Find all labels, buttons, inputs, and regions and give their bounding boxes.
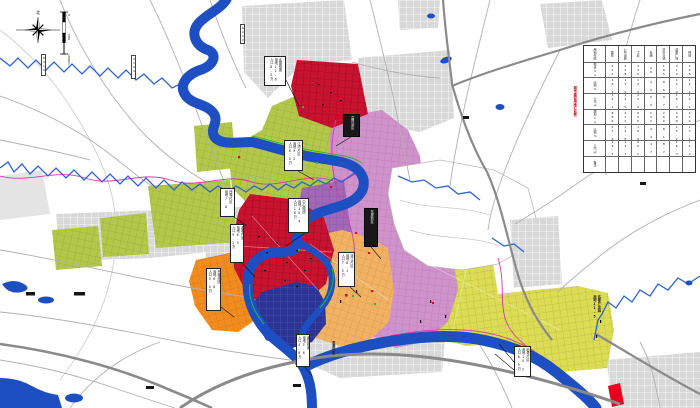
district-text-label: 李渡片区 — [328, 340, 337, 366]
table-cell: 14.1 — [682, 93, 695, 109]
land-use-table-grid: 用地代码居住公共设施工业仓储对外交通道路广场绿地现状ha612238420961… — [584, 46, 695, 172]
callout-line: 用地8.1 — [345, 254, 348, 285]
table-cell — [618, 156, 631, 172]
table-cell: 人均㎡ — [584, 93, 605, 109]
callout-line: 江湾片区 — [296, 142, 299, 169]
table-cell: 对外交通 — [656, 46, 669, 62]
table-cell: 29.5 — [605, 140, 618, 156]
table-cell — [682, 156, 695, 172]
callout-label: 江湾片区 用地9.2 人口6.0万 — [284, 140, 303, 171]
table-cell: 142 — [644, 109, 657, 125]
table-cell: 13.1 — [682, 124, 695, 140]
callout-line: 人口4.8万 — [297, 336, 300, 365]
table-cell: 18.8 — [631, 124, 644, 140]
table-cell: 11.0 — [618, 77, 631, 93]
table-cell — [631, 156, 644, 172]
table-cell: 412 — [618, 109, 631, 125]
table-cell: 605 — [631, 109, 644, 125]
callout-line: 临港片区 — [525, 348, 528, 375]
district-text-label: 东部产业园 用地11.5 — [590, 294, 602, 334]
callout-line: 西城片区 — [228, 190, 231, 215]
north-label: 北 — [36, 9, 40, 15]
table-cell: 12.5 — [618, 93, 631, 109]
table-cell: 绿地 — [682, 46, 695, 62]
land-use-table: 用地代码居住公共设施工业仓储对外交通道路广场绿地现状ha612238420961… — [583, 45, 696, 173]
table-cell: 8.1 — [656, 124, 669, 140]
table-cell: 4.5 — [644, 77, 657, 93]
table-cell: 14.0 — [682, 140, 695, 156]
table-cell: 32.1 — [605, 93, 618, 109]
table-cell: 185 — [656, 62, 669, 78]
callout-line: 东岸新区 — [369, 210, 372, 245]
table-cell: 488 — [669, 109, 682, 125]
table-cell: 260 — [656, 109, 669, 125]
table-cell: 仓储 — [644, 46, 657, 62]
callout-line: 人口9.2万 — [231, 226, 234, 261]
table-cell: 比例% — [584, 124, 605, 140]
callout-line: 人口7.5万 — [340, 254, 343, 285]
table-cell: 268 — [682, 62, 695, 78]
callout-line: 用地11.5 — [592, 295, 595, 333]
callout-line: 用地5.6 — [301, 336, 304, 365]
district-name-box: 高铁站区 — [343, 114, 360, 137]
table-cell: 用地代码 — [584, 46, 605, 62]
table-cell: 238 — [618, 62, 631, 78]
callout-line: 李渡片区 — [331, 341, 334, 365]
callout-line: 用地15.4 — [297, 200, 300, 231]
table-cell: 14.4 — [669, 77, 682, 93]
table-cell: 工业 — [631, 46, 644, 62]
road-label: X103 — [131, 55, 136, 79]
table-cell: 612 — [605, 62, 618, 78]
callout-label: 老城片区 用地6.3 人口9.2万 — [230, 224, 244, 263]
callout-line: 用地10.2 — [521, 348, 524, 375]
table-cell: 12.4 — [682, 77, 695, 93]
callout-line: 人口6.0万 — [287, 142, 290, 169]
callout-label: 西城片区 用地7.8 — [220, 188, 235, 217]
scale-tick: 0 — [67, 14, 71, 16]
table-cell: 19.5 — [631, 77, 644, 93]
table-cell: 道路广场 — [669, 46, 682, 62]
table-cell: 16.3 — [669, 140, 682, 156]
district-name-box: 东岸新区 — [364, 208, 378, 247]
callout-line: 北部组团 — [278, 58, 281, 84]
table-cell: 备注 — [584, 156, 605, 172]
callout-line: 高铁站区 — [350, 116, 353, 135]
callout-line: 南部组团 — [306, 336, 309, 365]
callout-line: 人口8.5万 — [269, 58, 272, 84]
table-cell: 20.2 — [631, 140, 644, 156]
road-label: G212 — [240, 24, 245, 44]
callout-label: 西南组团 用地6.8 人口5.0万 — [206, 268, 221, 311]
table-cell — [644, 156, 657, 172]
table-cell: 规划ha — [584, 109, 605, 125]
planning-map: 北 0 500 1000m 北部组团 用地12.6 人口8.5万 高铁站区 江湾… — [0, 0, 700, 408]
table-cell: 13.7 — [618, 140, 631, 156]
table-cell: 9.7 — [656, 93, 669, 109]
table-cell — [669, 156, 682, 172]
callout-line: 用地9.2 — [292, 142, 295, 169]
table-cell: 现状ha — [584, 62, 605, 78]
table-cell: 居住 — [605, 46, 618, 62]
table-cell: 比例% — [584, 77, 605, 93]
table-cell: 4.7 — [644, 140, 657, 156]
callout-label: 滨江片区 用地8.1 人口7.5万 — [338, 252, 355, 287]
table-cell — [605, 156, 618, 172]
callout-line: 人口6.5万 — [516, 348, 519, 375]
table-cell: 886 — [605, 109, 618, 125]
table-cell: 15.2 — [669, 124, 682, 140]
callout-label: 南部组团 用地5.6 人口4.8万 — [296, 334, 310, 367]
table-cell: 4.4 — [644, 124, 657, 140]
land-use-table-title: 城市建设用地汇总表 — [572, 86, 576, 158]
callout-line: 用地7.8 — [224, 190, 227, 215]
scale-tick: 500 — [67, 34, 71, 40]
road-label: G319 — [41, 54, 46, 76]
table-cell — [656, 156, 669, 172]
table-cell: 人均㎡ — [584, 140, 605, 156]
scale-bar: 0 500 1000m — [60, 12, 71, 65]
table-cell: 8.6 — [656, 77, 669, 93]
table-cell: 22.0 — [631, 93, 644, 109]
table-cell: 420 — [682, 109, 695, 125]
table-cell: 公共设施 — [618, 46, 631, 62]
callout-label: 中心组团 用地15.4 人口18万 — [288, 198, 309, 233]
callout-line: 人口18万 — [292, 200, 295, 231]
compass-rose: 北 — [16, 9, 60, 43]
table-cell: 96 — [644, 62, 657, 78]
callout-label: 临港片区 用地10.2 人口6.5万 — [514, 346, 531, 377]
table-cell: 420 — [631, 62, 644, 78]
table-cell: 12.8 — [618, 124, 631, 140]
callout-line: 用地6.3 — [235, 226, 238, 261]
scale-tick: 1000m — [67, 54, 71, 65]
callout-line: 老城片区 — [240, 226, 243, 261]
callout-line: 中心组团 — [301, 200, 304, 231]
table-cell: 310 — [669, 62, 682, 78]
callout-line: 西南组团 — [216, 270, 219, 309]
table-cell: 27.6 — [605, 124, 618, 140]
callout-line: 滨江片区 — [349, 254, 352, 285]
callout-line: 东部产业园 — [597, 295, 600, 333]
callout-line: 用地6.8 — [212, 270, 215, 309]
callout-line: 人口5.0万 — [207, 270, 210, 309]
callout-label: 北部组团 用地12.6 人口8.5万 — [264, 56, 286, 86]
table-cell: 8.7 — [656, 140, 669, 156]
callout-line: 用地12.6 — [273, 58, 276, 84]
table-cell: 16.3 — [669, 93, 682, 109]
table-cell: 28.4 — [605, 77, 618, 93]
table-cell: 5.0 — [644, 93, 657, 109]
